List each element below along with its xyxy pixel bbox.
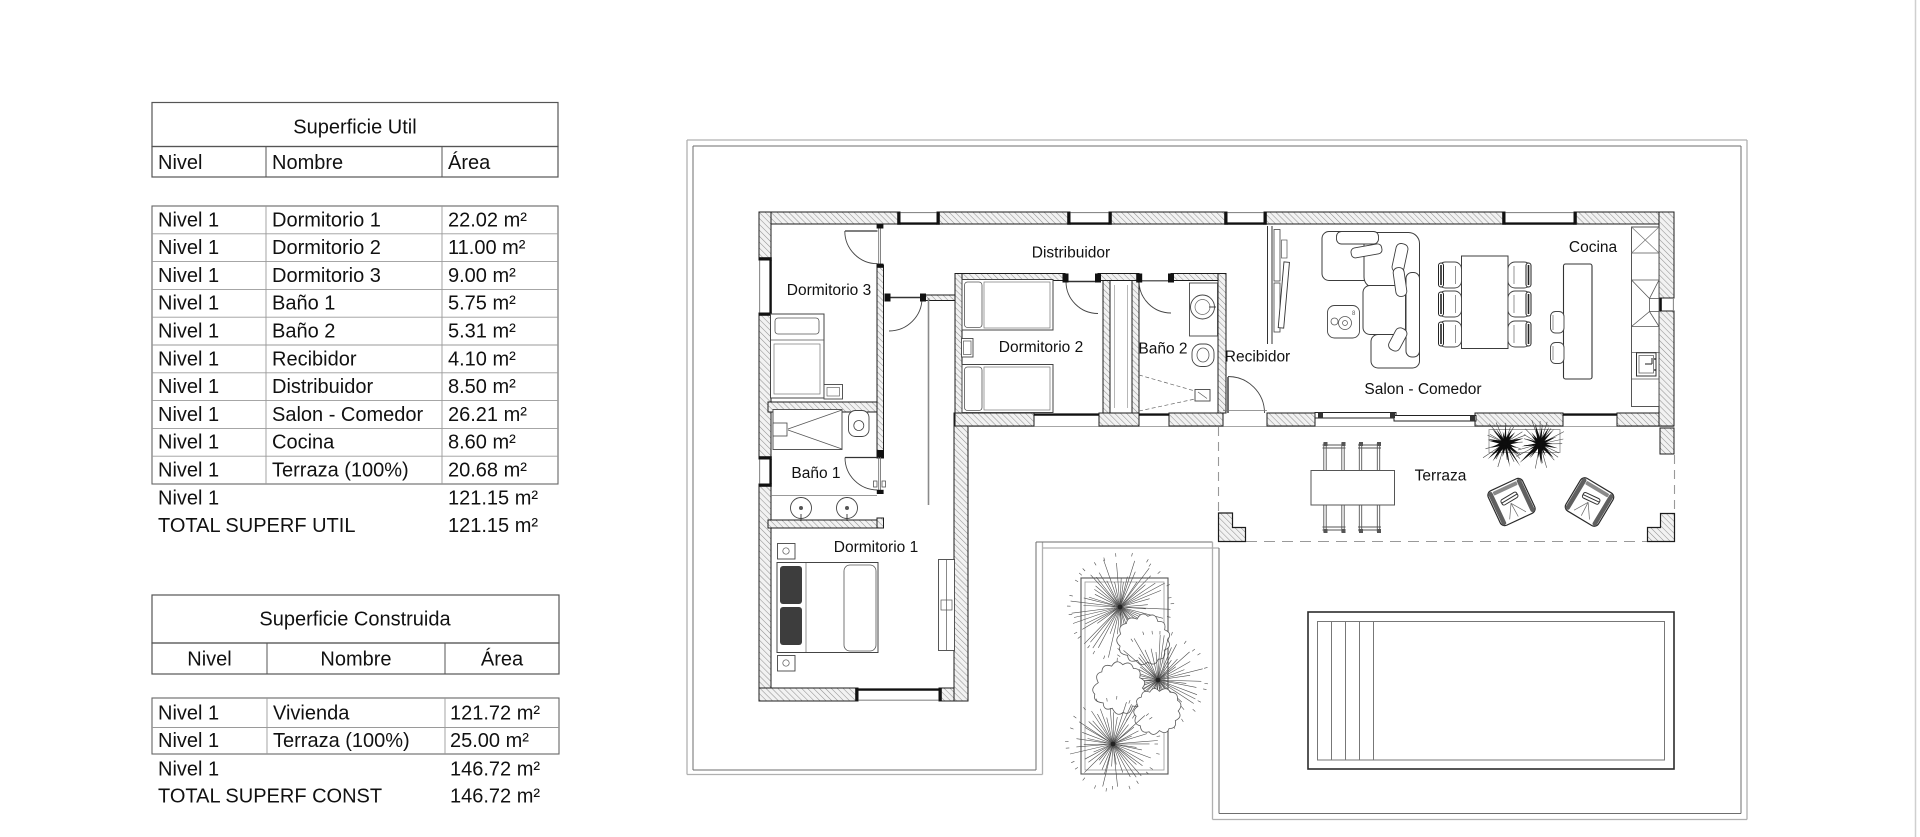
svg-text:Salon - Comedor: Salon - Comedor [272, 404, 424, 426]
svg-text:Nivel 1: Nivel 1 [158, 293, 219, 315]
svg-text:Terraza (100%): Terraza (100%) [272, 460, 409, 482]
svg-text:146.72 m²: 146.72 m² [450, 759, 540, 781]
svg-text:Superficie Util: Superficie Util [293, 117, 416, 139]
svg-text:121.15 m²: 121.15 m² [448, 515, 538, 537]
svg-text:Nivel 1: Nivel 1 [158, 209, 219, 231]
svg-text:Dormitorio 1: Dormitorio 1 [834, 539, 918, 556]
svg-text:121.72 m²: 121.72 m² [450, 703, 540, 725]
svg-text:Nivel 1: Nivel 1 [158, 759, 219, 781]
svg-text:Baño 1: Baño 1 [791, 465, 840, 482]
svg-text:Terraza (100%): Terraza (100%) [273, 730, 410, 752]
svg-text:Nivel: Nivel [187, 649, 231, 671]
svg-text:Nivel 1: Nivel 1 [158, 321, 219, 343]
svg-text:Nivel 1: Nivel 1 [158, 265, 219, 287]
svg-text:25.00 m²: 25.00 m² [450, 730, 529, 752]
svg-text:Cocina: Cocina [1569, 239, 1618, 256]
svg-text:Área: Área [448, 151, 491, 174]
svg-text:TOTAL SUPERF UTIL: TOTAL SUPERF UTIL [158, 515, 355, 537]
svg-text:4.10 m²: 4.10 m² [448, 348, 516, 370]
svg-text:TOTAL SUPERF CONST: TOTAL SUPERF CONST [158, 786, 382, 808]
svg-text:Baño 2: Baño 2 [1138, 341, 1187, 358]
svg-text:Distribuidor: Distribuidor [1032, 245, 1110, 262]
svg-text:5.31 m²: 5.31 m² [448, 321, 516, 343]
svg-text:Nombre: Nombre [320, 649, 391, 671]
svg-text:Salon - Comedor: Salon - Comedor [1364, 381, 1481, 398]
svg-text:26.21 m²: 26.21 m² [448, 404, 527, 426]
svg-text:Área: Área [481, 648, 524, 671]
svg-text:Recibidor: Recibidor [1225, 349, 1290, 366]
svg-text:Baño 2: Baño 2 [272, 321, 335, 343]
svg-text:Nivel 1: Nivel 1 [158, 703, 219, 725]
svg-text:22.02 m²: 22.02 m² [448, 209, 527, 231]
svg-text:Dormitorio 3: Dormitorio 3 [272, 265, 381, 287]
svg-text:Superficie Construida: Superficie Construida [259, 609, 451, 631]
svg-text:Dormitorio 2: Dormitorio 2 [999, 339, 1083, 356]
svg-text:Baño 1: Baño 1 [272, 293, 335, 315]
svg-text:Distribuidor: Distribuidor [272, 376, 373, 398]
svg-text:Nivel: Nivel [158, 152, 202, 174]
svg-text:11.00 m²: 11.00 m² [448, 237, 526, 259]
svg-text:Cocina: Cocina [272, 432, 335, 454]
svg-text:121.15 m²: 121.15 m² [448, 488, 538, 510]
svg-text:Nivel 1: Nivel 1 [158, 376, 219, 398]
svg-text:146.72 m²: 146.72 m² [450, 786, 540, 808]
svg-text:Nivel 1: Nivel 1 [158, 488, 219, 510]
svg-text:Terraza: Terraza [1415, 468, 1467, 485]
svg-text:Nivel 1: Nivel 1 [158, 460, 219, 482]
svg-text:Nombre: Nombre [272, 152, 343, 174]
svg-text:Dormitorio 2: Dormitorio 2 [272, 237, 381, 259]
svg-text:Nivel 1: Nivel 1 [158, 404, 219, 426]
svg-text:Nivel 1: Nivel 1 [158, 432, 219, 454]
svg-text:8.60 m²: 8.60 m² [448, 432, 516, 454]
svg-text:8.50 m²: 8.50 m² [448, 376, 516, 398]
svg-text:Dormitorio 3: Dormitorio 3 [787, 282, 871, 299]
svg-text:Dormitorio 1: Dormitorio 1 [272, 209, 381, 231]
svg-text:Nivel 1: Nivel 1 [158, 730, 219, 752]
svg-text:Recibidor: Recibidor [272, 348, 357, 370]
svg-text:Vivienda: Vivienda [273, 703, 350, 725]
svg-text:5.75 m²: 5.75 m² [448, 293, 516, 315]
svg-text:20.68 m²: 20.68 m² [448, 460, 527, 482]
svg-text:9.00 m²: 9.00 m² [448, 265, 516, 287]
svg-text:Nivel 1: Nivel 1 [158, 237, 219, 259]
svg-text:Nivel 1: Nivel 1 [158, 348, 219, 370]
